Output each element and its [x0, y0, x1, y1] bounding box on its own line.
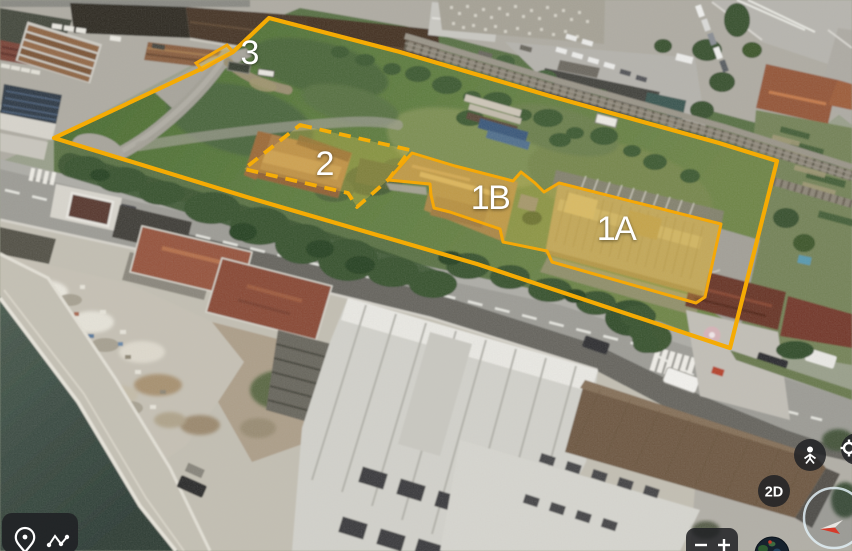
svg-text:3: 3 — [241, 34, 260, 72]
svg-text:1B: 1B — [471, 179, 510, 217]
svg-text:2: 2 — [316, 145, 335, 183]
svg-text:2D: 2D — [765, 485, 784, 501]
svg-text:1A: 1A — [597, 210, 637, 248]
